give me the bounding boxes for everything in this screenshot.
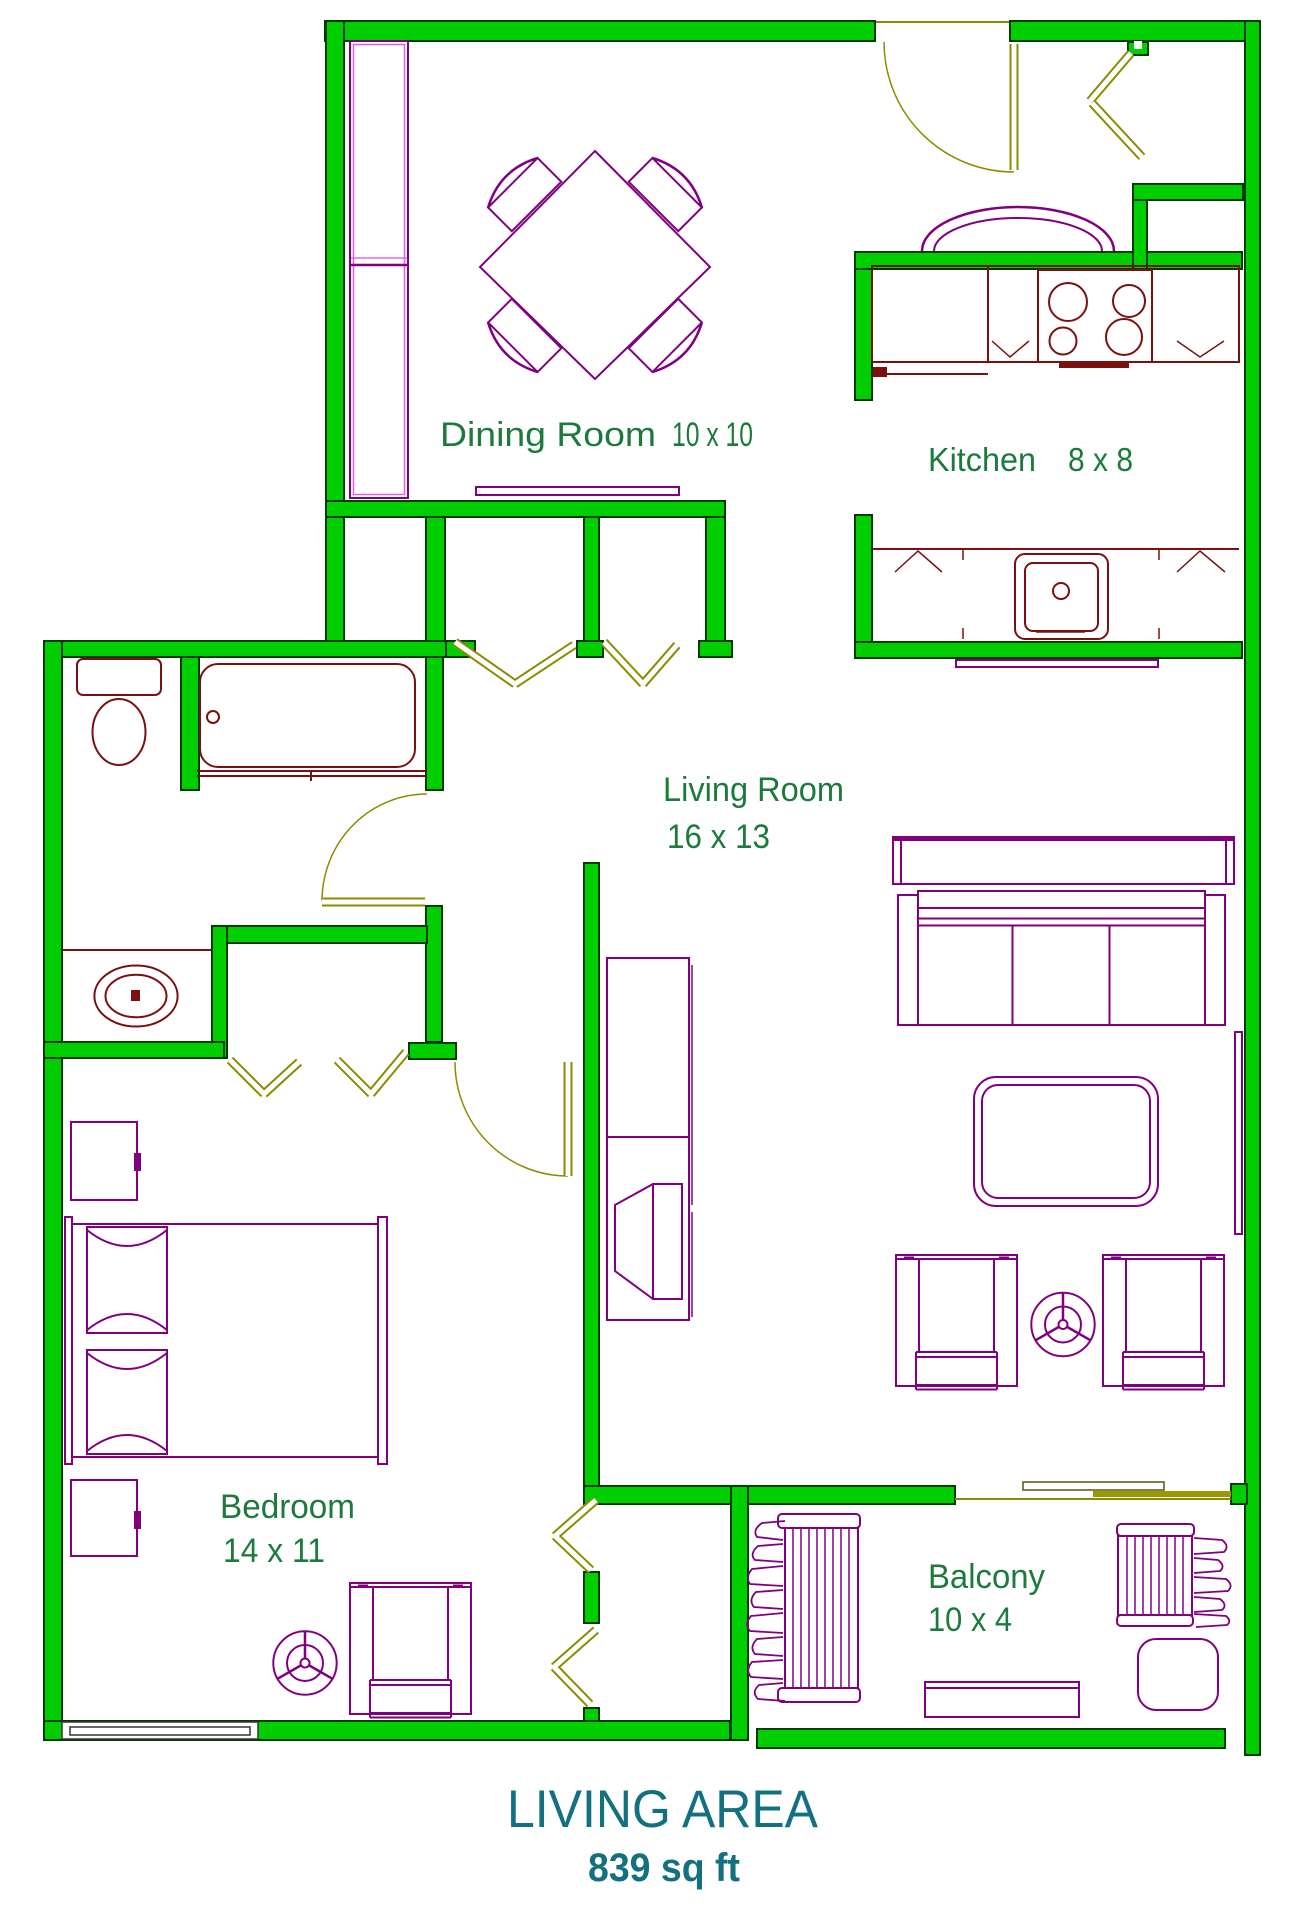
svg-text:LIVING AREA: LIVING AREA xyxy=(507,1780,819,1839)
svg-text:Balcony: Balcony xyxy=(928,1558,1045,1596)
svg-text:839 sq ft: 839 sq ft xyxy=(588,1846,740,1890)
svg-text:Bedroom: Bedroom xyxy=(220,1488,355,1526)
svg-text:16 x 13: 16 x 13 xyxy=(667,818,770,856)
svg-text:Living Room: Living Room xyxy=(663,771,844,809)
svg-text:10 x 4: 10 x 4 xyxy=(928,1601,1012,1639)
svg-text:10 x 10: 10 x 10 xyxy=(672,416,753,454)
svg-text:8 x 8: 8 x 8 xyxy=(1068,441,1133,478)
svg-text:Kitchen: Kitchen xyxy=(928,441,1036,478)
svg-text:Dining Room: Dining Room xyxy=(440,416,656,454)
svg-text:14 x 11: 14 x 11 xyxy=(223,1532,325,1570)
